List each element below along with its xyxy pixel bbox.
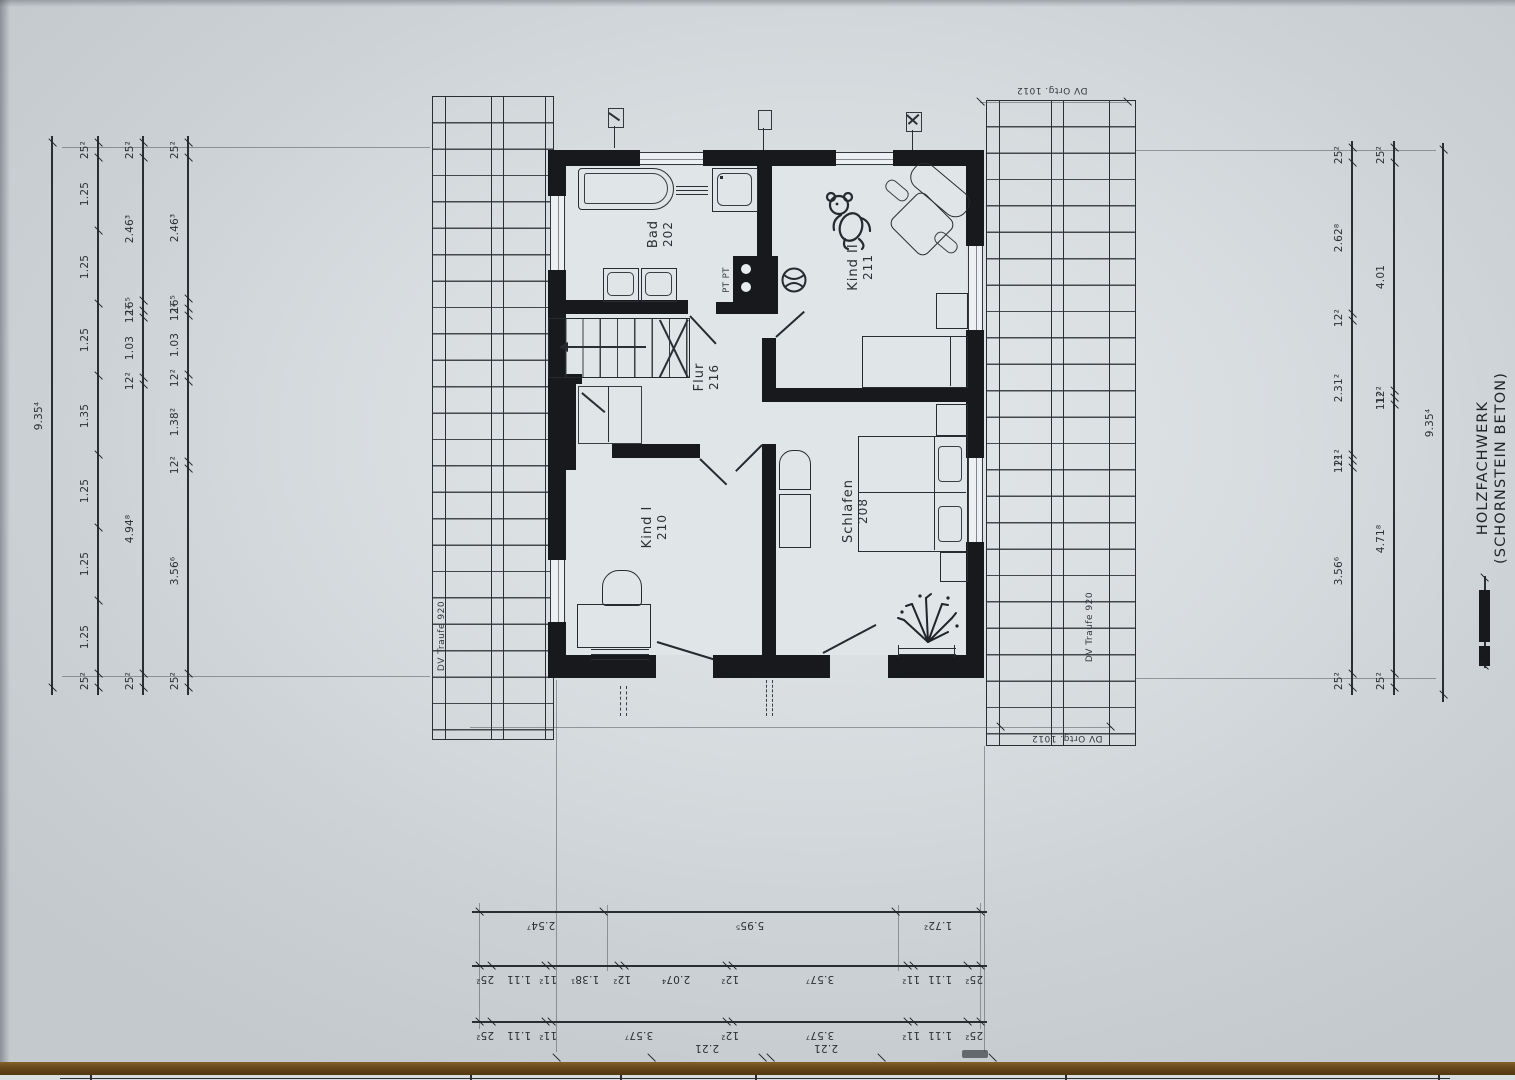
hatch-rail — [999, 101, 1000, 745]
room-name: Kind II — [846, 227, 861, 307]
dim-label: 1.72² — [903, 918, 973, 932]
bench-icon — [954, 645, 955, 657]
extension-line — [62, 676, 430, 677]
dim-label: 9.35⁴ — [1423, 388, 1437, 458]
dim-label: 12² — [695, 972, 765, 986]
chimney-flue — [741, 264, 751, 274]
window-marker-stem — [763, 128, 764, 150]
window — [836, 152, 893, 165]
sill-dash — [620, 686, 621, 716]
dim-label: 25² — [78, 646, 92, 716]
hatch-rail — [1063, 101, 1064, 745]
hatch-rail — [545, 97, 546, 739]
dim-label: 25² — [939, 972, 1009, 986]
window — [550, 560, 565, 622]
extension-line — [556, 680, 557, 1052]
eaves-line — [470, 727, 1112, 728]
room-label-kind2: Kind II 211 — [846, 227, 876, 307]
bed-pillow-line — [950, 336, 951, 386]
radiator-icon — [676, 190, 708, 191]
sill-dash — [626, 686, 627, 716]
chimney-block — [733, 256, 778, 302]
eaves-note-right: DV Traufe 920 — [1085, 582, 1097, 672]
shower-drain — [720, 176, 723, 179]
nightstand — [940, 552, 968, 582]
room-name: Schlafen — [841, 471, 856, 551]
chair-icon — [602, 570, 642, 606]
dim-label: 2.46³ — [168, 193, 182, 263]
drawer-lines — [591, 659, 649, 660]
dim-label: 11² — [513, 1028, 583, 1042]
dim-label: 2.31² — [1332, 353, 1346, 423]
hatch-rail — [1109, 101, 1110, 745]
wardrobe-icon — [779, 450, 811, 490]
dim-label: 3.57⁷ — [604, 1028, 674, 1042]
dim-label: 3.56⁶ — [1332, 536, 1346, 606]
hatch-rail — [503, 97, 504, 739]
room-name: Flur — [692, 337, 707, 417]
dim-label: 2.54⁷ — [506, 918, 576, 932]
dim-label: 25² — [123, 115, 137, 185]
wall — [966, 542, 984, 678]
wall-closet — [564, 384, 576, 470]
legend-line2: (SCHORNSTEIN BETON) — [1492, 308, 1510, 628]
extension-line — [984, 746, 985, 1052]
room-number: 208 — [856, 471, 870, 551]
wall-bad-kind2 — [757, 150, 772, 258]
desk-icon — [577, 604, 651, 648]
room-number: 210 — [655, 487, 669, 567]
dim-label: 25² — [1374, 646, 1388, 716]
next-page-tick — [755, 1075, 757, 1080]
room-label-kind1: Kind I 210 — [640, 487, 670, 567]
room-label-flur: Flur 216 — [692, 337, 722, 417]
radiator-icon — [676, 186, 708, 187]
dim-line — [97, 136, 98, 695]
dim-label: 25² — [1374, 120, 1388, 190]
dim-label: 12² — [695, 1028, 765, 1042]
dim-label: 25² — [168, 646, 182, 716]
dim-label: 12² — [123, 346, 137, 416]
dim-label: 4.94⁸ — [123, 494, 137, 564]
window — [968, 246, 983, 330]
dim-label: 2.21 — [791, 1041, 861, 1055]
dim-label: 5.95⁵ — [715, 918, 785, 932]
window-marker-stem — [614, 126, 615, 148]
staircase — [548, 318, 690, 378]
roof-hatch-left — [432, 96, 554, 740]
legend-line1: HOLZFACHWERK — [1474, 308, 1492, 628]
bed-pillow-line — [934, 436, 935, 550]
room-name: Kind I — [640, 487, 655, 567]
ball-icon — [780, 266, 808, 294]
next-page-tick — [90, 1075, 92, 1080]
gable-note-bottom: DV Ortg. 1012 — [1017, 731, 1117, 743]
wall-bad-flur — [548, 300, 688, 314]
dim-label: 3.57⁷ — [785, 972, 855, 986]
room-number: 211 — [861, 227, 875, 307]
pillow-icon — [938, 506, 962, 542]
room-label-schlafen: Schlafen 208 — [841, 471, 871, 551]
gable-dim-line — [980, 102, 1128, 103]
scan-edge-shadow — [0, 0, 1515, 7]
next-page-tick — [620, 1075, 622, 1080]
room-number: 216 — [707, 337, 721, 417]
dim-label: 3.56⁶ — [168, 536, 182, 606]
next-page-tick — [1065, 1075, 1067, 1080]
dim-label: 1.25 — [78, 305, 92, 375]
window — [968, 458, 983, 542]
bench-icon — [898, 648, 956, 649]
dim-label: 1.25 — [78, 159, 92, 229]
dim-label: 25² — [1332, 120, 1346, 190]
room-label-bad: Bad 202 — [646, 194, 676, 274]
stair-arrow-head — [554, 342, 568, 352]
flue-dash — [766, 680, 767, 716]
legend-text: HOLZFACHWERK (SCHORNSTEIN BETON) — [1474, 308, 1510, 628]
dim-label: 3.57⁷ — [785, 1028, 855, 1042]
bench-icon — [898, 645, 899, 657]
extension-line — [1136, 150, 1436, 151]
dim-line — [1351, 141, 1352, 695]
dim-line — [1442, 143, 1443, 702]
dim-label: 12² — [1332, 429, 1346, 499]
floorplan-scan: Bad 202 Kind II 211 Flur 216 Kind I 210 … — [0, 0, 1515, 1080]
next-page-sliver — [0, 1075, 1515, 1080]
dim-label: 4.01 — [1374, 242, 1388, 312]
bed-kind2 — [862, 336, 968, 388]
dim-line — [142, 136, 143, 695]
wall-flur-schlafen — [762, 444, 776, 655]
wall-kind2-schlafen — [776, 388, 984, 402]
chimney-flue — [741, 282, 751, 292]
dim-label: 25² — [168, 115, 182, 185]
dim-line — [472, 911, 987, 912]
drawer-lines — [591, 654, 649, 655]
plant-icon — [890, 590, 962, 652]
gable-note-top: DV Ortg. 1012 — [1002, 83, 1102, 95]
dim-label: 12² — [168, 430, 182, 500]
dim-label: 4.71⁸ — [1374, 504, 1388, 574]
dim-label: 1.35 — [78, 381, 92, 451]
wall-kind1-flur — [612, 444, 700, 458]
hatch-rail — [491, 97, 492, 739]
radiator-icon — [676, 194, 708, 195]
chimney-label: PT PT — [722, 250, 736, 310]
sink-inner — [607, 272, 634, 296]
dim-label: 9.35⁴ — [32, 381, 46, 451]
legend-bar — [1479, 590, 1490, 642]
bench-icon — [898, 654, 956, 655]
dim-line — [51, 136, 52, 695]
dim-label: 12² — [1332, 283, 1346, 353]
next-page-tick — [1438, 1075, 1440, 1080]
extension-line — [62, 147, 430, 148]
dim-label: 25² — [939, 1028, 1009, 1042]
dim-label: 25² — [123, 646, 137, 716]
stair-arrow — [560, 346, 646, 348]
nightstand — [936, 293, 968, 329]
flue-dash — [772, 680, 773, 716]
pillow-icon — [938, 446, 962, 482]
eaves-note-left: DV Traufe 920 — [437, 591, 449, 681]
bed-divider — [858, 492, 966, 493]
dim-line — [1393, 141, 1394, 695]
room-name: Bad — [646, 194, 661, 274]
dim-label: 2.21 — [672, 1041, 742, 1055]
window — [550, 196, 565, 270]
wall — [548, 150, 566, 196]
wall-flur-kind2 — [762, 338, 776, 402]
window — [640, 152, 703, 165]
sink-inner — [645, 272, 672, 296]
table-edge — [0, 1062, 1515, 1075]
dim-label: 2.62⁸ — [1332, 203, 1346, 273]
dim-label: 11² — [1374, 366, 1388, 436]
dim-label: 1.25 — [78, 529, 92, 599]
dim-label: 1.25 — [78, 232, 92, 302]
dim-label: 1.25 — [78, 456, 92, 526]
closet-divider — [608, 386, 609, 442]
closet — [578, 386, 642, 444]
extension-line — [1136, 678, 1436, 679]
dim-line — [187, 136, 188, 695]
hatch-rail — [1051, 101, 1052, 745]
window-marker — [758, 110, 772, 130]
roof-hatch-right — [986, 100, 1136, 746]
wardrobe-icon — [779, 494, 811, 548]
room-number: 202 — [661, 194, 675, 274]
dim-label: 25² — [1332, 646, 1346, 716]
drawer-lines — [591, 649, 649, 650]
nightstand — [936, 404, 968, 436]
wall — [888, 655, 966, 678]
wall — [713, 655, 830, 678]
text-smudge — [962, 1050, 988, 1058]
window-marker-stem — [912, 130, 913, 150]
dim-label: 2.46³ — [123, 194, 137, 264]
next-page-tick — [470, 1075, 472, 1080]
scan-edge-shadow — [0, 0, 10, 1080]
